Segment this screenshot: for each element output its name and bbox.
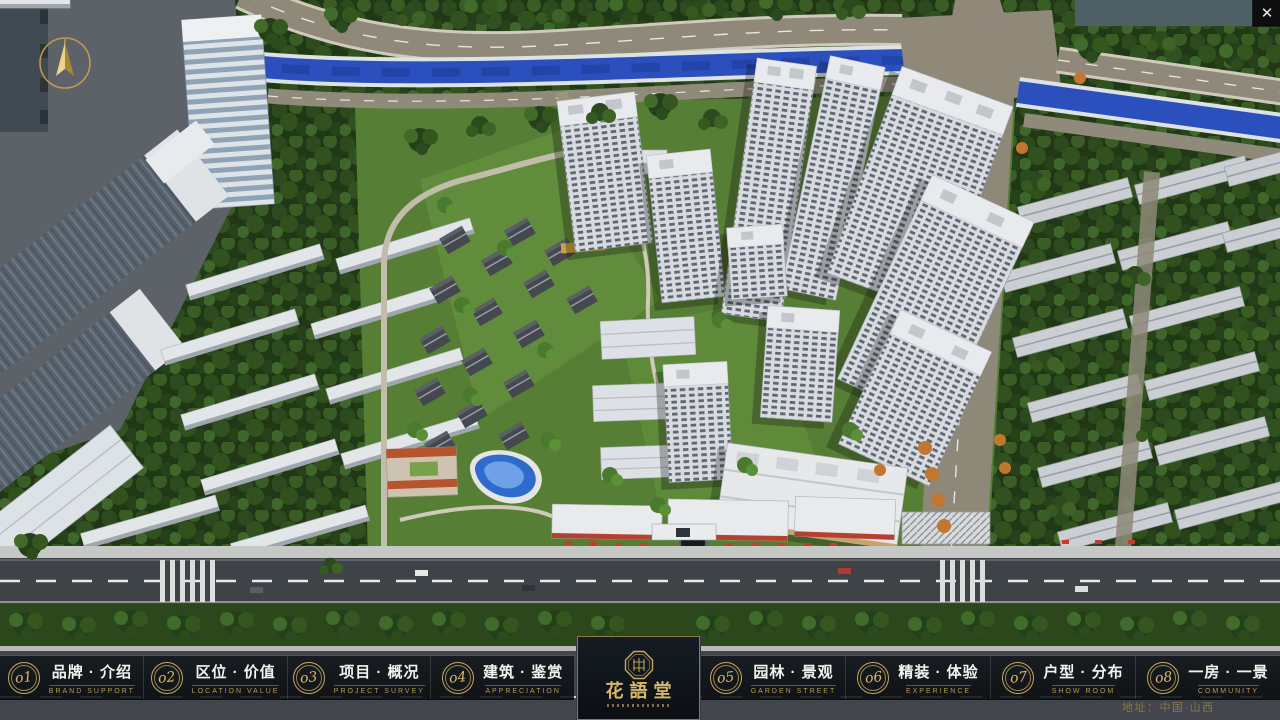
nav-item-label: 户型 · 分布 — [1043, 661, 1123, 682]
nav-item-subtitle: SHOW ROOM — [1052, 685, 1116, 695]
close-icon: ✕ — [1261, 4, 1274, 22]
nav-item-label: 建筑 · 鉴赏 — [483, 661, 563, 682]
bottom-nav-left: o1 品牌 · 介绍 BRAND SUPPORT o2 区位 · 价值 LOCA… — [0, 655, 574, 700]
compass-icon — [34, 32, 96, 94]
nav-item-subtitle: BRAND SUPPORT — [49, 685, 135, 695]
nav-item-01-brand-intro[interactable]: o1 品牌 · 介绍 BRAND SUPPORT — [0, 656, 143, 699]
nav-item-label: 精装 · 体验 — [898, 661, 978, 682]
nav-item-subtitle: COMMUNITY — [1198, 685, 1259, 695]
nav-item-03-project-survey[interactable]: o3 项目 · 概况 PROJECT SURVEY — [287, 656, 431, 699]
nav-item-label: 区位 · 价值 — [195, 661, 275, 682]
brand-tagline-rule — [607, 704, 671, 707]
nav-item-02-location-value[interactable]: o2 区位 · 价值 LOCATION VALUE — [143, 656, 287, 699]
nav-item-04-architecture[interactable]: o4 建筑 · 鉴赏 APPRECIATION — [430, 656, 574, 699]
brand-title: 花語堂 — [600, 683, 678, 701]
nav-item-subtitle: GARDEN STREET — [751, 685, 837, 695]
brand-logo-panel[interactable]: 花語堂 — [577, 636, 700, 720]
bottom-nav-right: o5 园林 · 景观 GARDEN STREET o6 精装 · 体验 EXPE… — [701, 655, 1280, 700]
nav-item-subtitle: PROJECT SURVEY — [334, 685, 425, 695]
nav-item-number-badge: o1 — [8, 662, 40, 694]
nav-item-label: 一房 · 一景 — [1188, 661, 1268, 682]
nav-item-subtitle: LOCATION VALUE — [192, 685, 280, 695]
nav-item-label: 品牌 · 介绍 — [52, 661, 132, 682]
site-aerial-render[interactable] — [0, 0, 1280, 720]
nav-item-number-badge: o8 — [1147, 662, 1179, 694]
nav-item-label: 项目 · 概况 — [339, 661, 419, 682]
nav-item-number-badge: o4 — [442, 662, 474, 694]
app-window: ✕ o1 品牌 · 介绍 BRAND SUPPORT o2 区位 · 价值 LO… — [0, 0, 1280, 720]
nav-item-06-interior-experience[interactable]: o6 精装 · 体验 EXPERIENCE — [845, 656, 990, 699]
nav-item-number-badge: o2 — [151, 662, 183, 694]
nav-item-number-badge: o5 — [710, 662, 742, 694]
nav-item-label: 园林 · 景观 — [753, 661, 833, 682]
nav-item-subtitle: EXPERIENCE — [906, 685, 971, 695]
nav-item-05-garden-landscape[interactable]: o5 园林 · 景观 GARDEN STREET — [701, 656, 845, 699]
nav-item-number-badge: o7 — [1002, 662, 1034, 694]
nav-item-subtitle: APPRECIATION — [485, 685, 561, 695]
nav-item-number-badge: o3 — [293, 662, 325, 694]
brand-seal-icon — [624, 650, 654, 680]
nav-item-07-floorplan-distribution[interactable]: o7 户型 · 分布 SHOW ROOM — [990, 656, 1135, 699]
nav-item-number-badge: o6 — [857, 662, 889, 694]
address-text: 地址：中国·山西 — [1122, 699, 1215, 715]
close-button[interactable]: ✕ — [1252, 0, 1280, 27]
nav-item-08-room-view[interactable]: o8 一房 · 一景 COMMUNITY — [1135, 656, 1280, 699]
